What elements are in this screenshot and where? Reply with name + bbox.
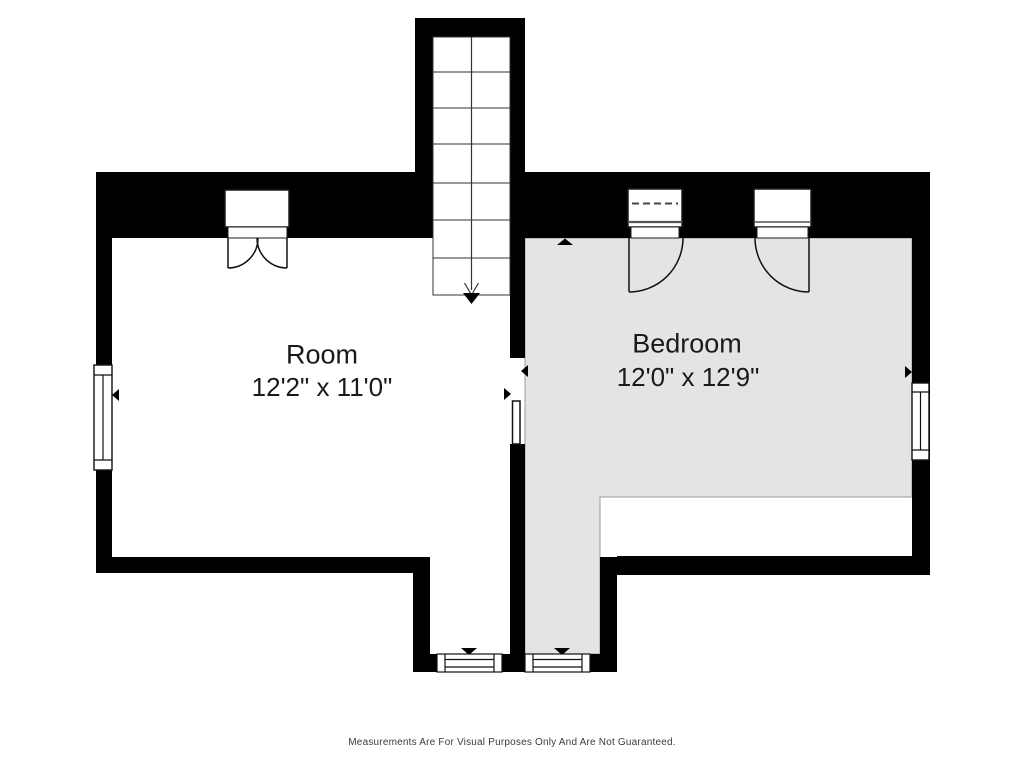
wall-protrusion-bottom-a	[413, 654, 437, 672]
door-swing	[228, 238, 287, 268]
wall-bottom-right	[617, 556, 930, 575]
floorplan-canvas: Room 12'2" x 11'0" Bedroom 12'0" x 12'9"…	[0, 0, 1024, 768]
wall-right	[912, 172, 930, 575]
door-jamb	[228, 227, 287, 238]
wall-middle-upper	[510, 172, 525, 358]
bottom-entry-left	[437, 648, 502, 672]
disclaimer-text: Measurements Are For Visual Purposes Onl…	[348, 738, 675, 748]
floorplan-drawing	[0, 0, 1024, 768]
wall-middle-lower	[510, 444, 525, 672]
wall-protrusion-bottom-c	[590, 654, 617, 672]
bedroom-dimensions: 12'0" x 12'9"	[617, 364, 760, 390]
window-left-marker-icon	[112, 389, 119, 401]
bedroom-label: Bedroom	[632, 331, 742, 358]
bedroom-floor-area	[525, 238, 912, 654]
interior-doorway	[504, 365, 528, 444]
room-double-door	[225, 190, 289, 268]
staircase	[433, 37, 510, 304]
door-jamb	[631, 227, 679, 238]
door-recess-box	[225, 190, 289, 227]
room-dimensions: 12'2" x 11'0"	[252, 374, 393, 400]
wall-protrusion-bottom-b	[502, 654, 525, 672]
door-slab	[513, 401, 521, 444]
window-left	[94, 365, 119, 470]
doorway-marker-right-icon	[504, 388, 511, 400]
room-label: Room	[286, 342, 358, 369]
wall-bottom-left	[96, 557, 430, 573]
door-jamb	[757, 227, 808, 238]
